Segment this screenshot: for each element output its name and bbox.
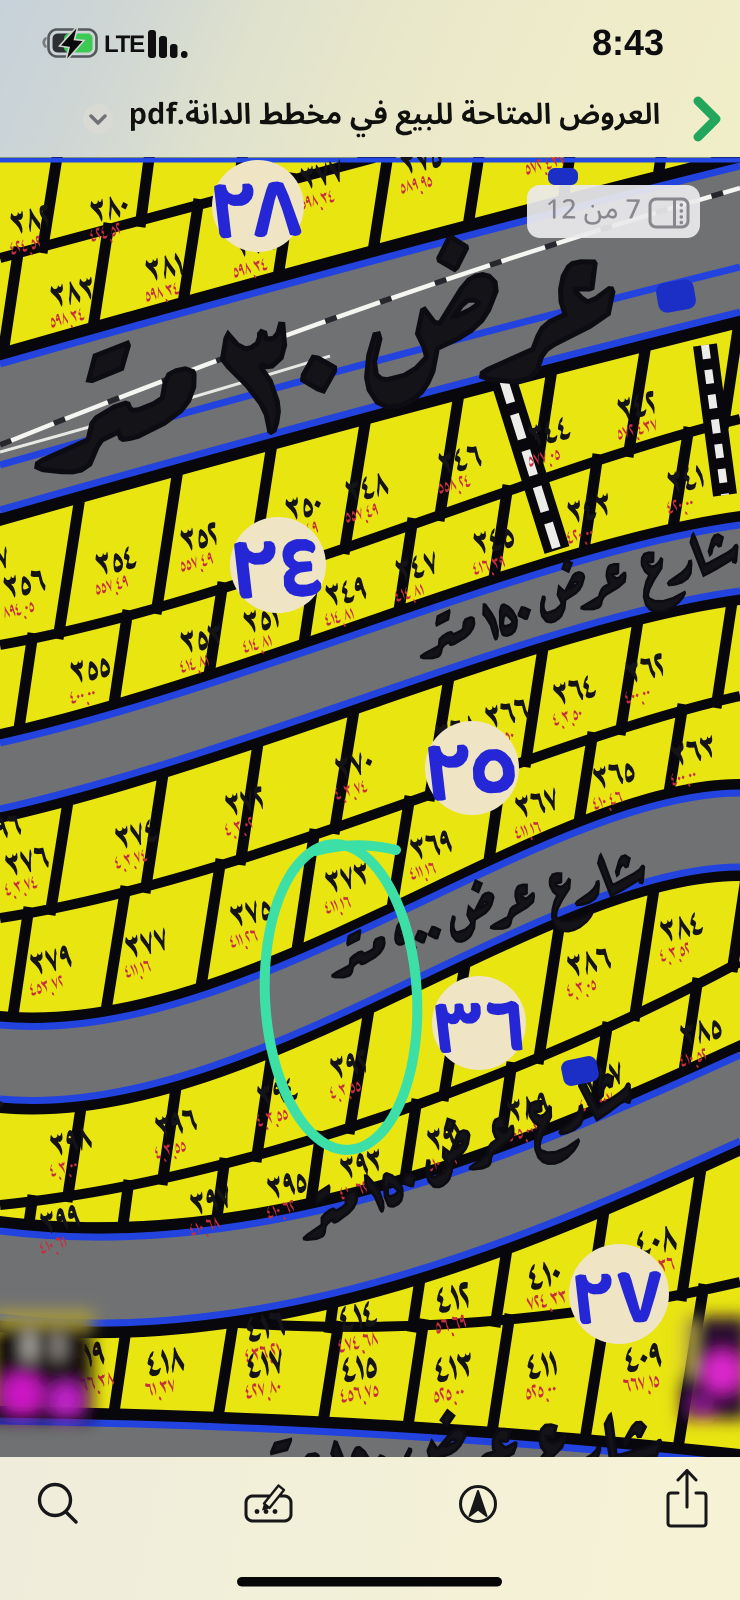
svg-text:LTE: LTE	[104, 31, 145, 58]
svg-text:8:43: 8:43	[592, 22, 664, 63]
